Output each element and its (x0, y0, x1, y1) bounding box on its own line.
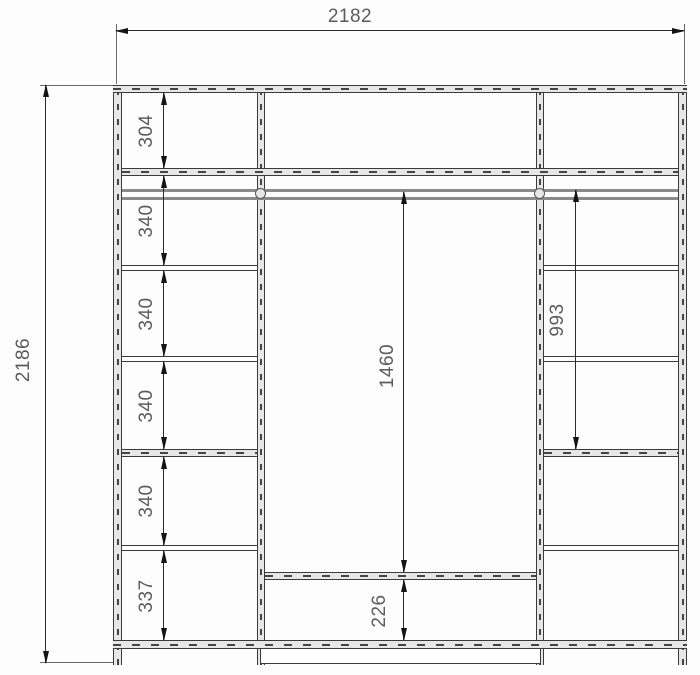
dim-label-left-340b: 340 (137, 282, 157, 346)
extension-line (40, 85, 113, 86)
dim-line-center-1460 (403, 192, 404, 572)
fixed-top-shelf (122, 168, 678, 176)
dim-line-left-340a (163, 176, 164, 265)
dim-label-left-340c: 340 (137, 374, 157, 438)
left-shelf-3-fixed (122, 449, 257, 457)
arrowhead-up-icon (161, 361, 167, 374)
arrowhead-up-icon (161, 270, 167, 283)
dim-label-center-226: 226 (370, 579, 390, 643)
technical-drawing-canvas: 2182 2186 304 340 340 340 340 337 (0, 0, 700, 675)
partition-right (536, 93, 544, 665)
arrowhead-up-icon (161, 92, 167, 105)
dim-line-left-340c (163, 362, 164, 449)
dim-label-overall-height: 2186 (14, 328, 34, 392)
arrowhead-down-icon (161, 533, 167, 546)
left-shelf-1 (122, 265, 257, 271)
right-shelf-2 (544, 356, 678, 362)
dim-label-left-304: 304 (137, 99, 157, 163)
plinth-panel (260, 648, 541, 664)
dim-line-overall-height (45, 85, 46, 663)
left-shelf-2 (122, 356, 257, 362)
dim-line-right-993 (575, 190, 576, 449)
right-side-panel (678, 85, 687, 665)
arrowhead-up-icon (161, 456, 167, 469)
arrowhead-up-icon (161, 550, 167, 563)
dim-line-center-226 (403, 580, 404, 640)
arrowhead-down-icon (161, 253, 167, 266)
left-shelf-4 (122, 545, 257, 551)
dim-line-left-337 (163, 551, 164, 640)
top-panel (113, 85, 687, 93)
arrowhead-right-icon (672, 28, 685, 34)
arrowhead-up-icon (401, 191, 407, 204)
right-shelf-4 (544, 545, 678, 551)
arrowhead-up-icon (573, 189, 579, 202)
arrowhead-up-icon (43, 84, 49, 97)
rail-bracket-right (534, 188, 545, 199)
arrowhead-up-icon (401, 579, 407, 592)
dim-label-left-337: 337 (137, 564, 157, 628)
dim-line-left-304 (163, 93, 164, 168)
arrowhead-down-icon (43, 651, 49, 664)
extension-line (40, 662, 113, 663)
arrowhead-down-icon (161, 437, 167, 450)
arrowhead-left-icon (115, 28, 128, 34)
right-shelf-3-fixed (544, 449, 678, 457)
dim-line-left-340d (163, 457, 164, 545)
arrowhead-down-icon (161, 628, 167, 641)
dim-line-left-340b (163, 271, 164, 356)
partition-left (257, 93, 265, 665)
right-shelf-1 (544, 265, 678, 271)
dim-label-left-340d: 340 (137, 469, 157, 533)
dim-label-overall-width: 2182 (318, 7, 382, 27)
rail-bracket-left (255, 188, 266, 199)
dim-label-center-1460: 1460 (378, 334, 398, 398)
arrowhead-down-icon (401, 560, 407, 573)
left-side-panel (113, 85, 122, 665)
dim-label-left-340a: 340 (137, 189, 157, 253)
dim-line-overall-width (116, 30, 684, 31)
arrowhead-down-icon (161, 156, 167, 169)
arrowhead-down-icon (573, 437, 579, 450)
dim-label-right-993: 993 (548, 288, 568, 352)
arrowhead-down-icon (401, 628, 407, 641)
arrowhead-down-icon (161, 344, 167, 357)
arrowhead-up-icon (161, 175, 167, 188)
